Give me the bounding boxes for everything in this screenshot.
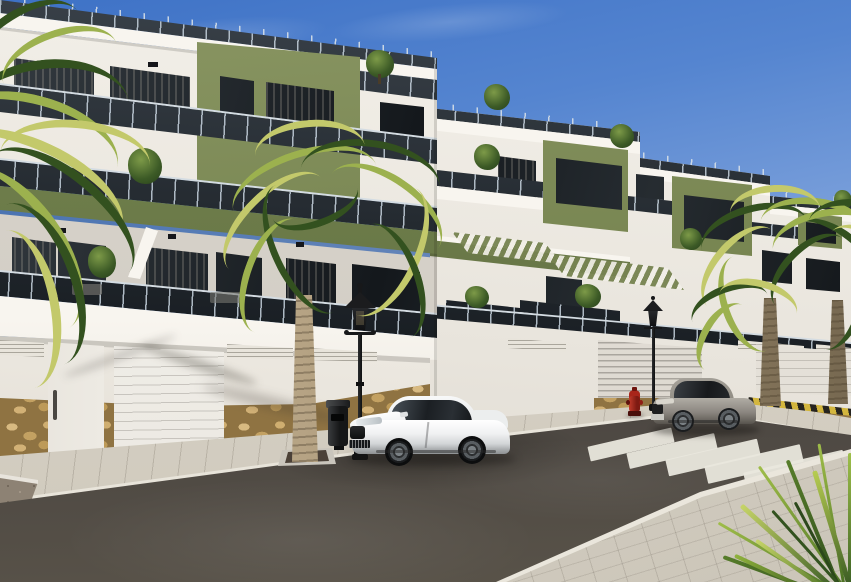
facade-wall-lamp <box>148 62 158 67</box>
hydrant-side-nut <box>639 400 643 405</box>
car-grille <box>350 426 365 439</box>
car-shadow <box>652 424 760 436</box>
lamp-finial <box>651 296 655 300</box>
lamp-cap <box>643 300 663 311</box>
gray-coupe <box>650 372 765 440</box>
terrace-plant <box>88 246 116 278</box>
facade-wall-lamp <box>58 228 66 233</box>
terrace-plant <box>575 284 601 308</box>
car-plate <box>349 440 370 448</box>
fire-hydrant <box>626 388 644 418</box>
terrace-plant <box>680 228 702 250</box>
hydrant-side-nut <box>626 400 630 405</box>
car-sill-shadow <box>668 420 738 423</box>
bin-base <box>334 446 344 450</box>
rooftop-shrub <box>834 190 851 210</box>
facade-wall-lamp <box>296 242 304 247</box>
terrace-furniture <box>210 292 244 303</box>
rooftop-shrub <box>484 84 510 110</box>
render-scene <box>0 0 851 582</box>
lamp-arm-curl <box>371 330 376 335</box>
terrace-plant <box>465 286 489 308</box>
terrace-furniture <box>72 284 102 295</box>
car-plate <box>651 414 664 420</box>
garage-door-handle <box>53 390 57 420</box>
rooftop-shrub <box>610 124 634 148</box>
bin-slot <box>331 414 344 421</box>
car-shadow <box>348 452 516 466</box>
facade-wall-lamp <box>168 234 176 239</box>
lamp-lantern <box>647 311 659 326</box>
white-coupe <box>348 392 518 472</box>
hydrant-base <box>628 411 641 416</box>
balcony-plant <box>128 148 162 184</box>
hydrant-body <box>629 396 640 412</box>
bin-body <box>328 406 348 446</box>
rooftop-shrub-stem <box>378 74 381 84</box>
lamp-cap <box>344 292 376 308</box>
hydrant-cap <box>632 387 637 391</box>
car-body <box>352 420 510 454</box>
lamp-arm-curl <box>344 330 349 335</box>
car-sill-shadow <box>376 450 496 453</box>
balcony-plant <box>474 144 500 170</box>
car-grille <box>652 404 663 414</box>
lamp-pole-ring <box>356 382 364 386</box>
lamp-glass-glow <box>356 311 364 325</box>
car-wheel-rear <box>718 408 740 430</box>
